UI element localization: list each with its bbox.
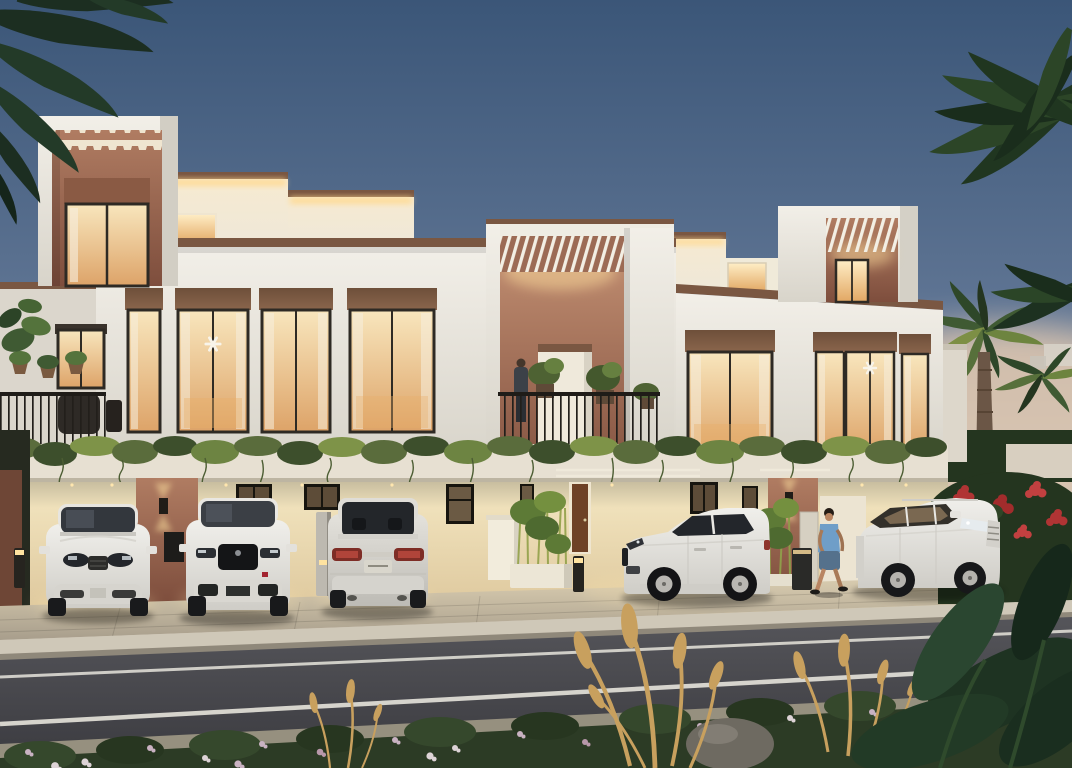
wall-sconce <box>159 498 168 514</box>
window-w4 <box>347 288 437 432</box>
tail-light <box>764 540 770 550</box>
left-tower-curtain <box>70 208 78 282</box>
right-box-pergola <box>826 218 898 252</box>
window-w3 <box>259 288 333 432</box>
face <box>825 513 833 521</box>
bollard-1 <box>14 548 25 588</box>
mirror <box>146 546 157 554</box>
left-terracotta-pier <box>0 470 22 612</box>
dark-bin <box>792 548 812 590</box>
half-wall-cap <box>538 344 592 352</box>
roof-wall-a-coping <box>170 172 288 179</box>
wheel <box>48 598 66 616</box>
black-grille <box>218 544 258 570</box>
window-w8 <box>899 334 931 454</box>
bollard-2 <box>573 556 584 592</box>
left-tower-return <box>160 116 178 286</box>
scene-canvas <box>0 0 1072 768</box>
ground-window-b <box>304 484 340 510</box>
red-badge <box>262 572 268 577</box>
entry-door-1 <box>569 482 591 554</box>
ground-window-e <box>690 482 718 514</box>
window-w6 <box>813 332 847 454</box>
shoe <box>810 590 820 595</box>
mirror <box>950 511 961 518</box>
mirror <box>286 544 297 552</box>
car-suv-rear <box>321 498 433 620</box>
window-w5 <box>685 330 775 454</box>
dusk-townhouse-render <box>0 0 1072 768</box>
right-roof-box <box>778 206 918 302</box>
left-tower-dentils <box>52 130 162 150</box>
central-tower <box>486 219 674 452</box>
balcony-rail-top <box>0 392 106 396</box>
roof-wall-b-coping <box>288 190 414 197</box>
wheel <box>410 590 426 608</box>
right-end-cap <box>943 344 967 350</box>
window-w7 <box>843 332 897 454</box>
central-tower-left-column <box>486 224 500 452</box>
wheel <box>330 590 346 608</box>
central-tower-cap <box>486 219 674 224</box>
roof-wall-a-led <box>172 179 286 186</box>
grille <box>88 556 108 570</box>
right-box-return <box>900 206 918 302</box>
wheel <box>130 598 148 616</box>
shorts <box>819 551 840 570</box>
roof-wall-b-led <box>290 197 412 204</box>
balcony-side-table <box>106 400 122 432</box>
left-tower-lintel <box>64 178 150 204</box>
bamboo-planter-1 <box>510 491 572 588</box>
ground-window-c <box>446 484 474 524</box>
wheel <box>188 596 206 616</box>
pergola-slats <box>498 230 624 272</box>
window-w2 <box>175 288 251 432</box>
balcony-hanging-pots <box>9 351 87 378</box>
mirror <box>179 544 190 552</box>
wheel <box>270 596 288 616</box>
shoe <box>838 587 848 592</box>
window-w1 <box>125 288 163 432</box>
roof-niche-warm-2 <box>728 263 766 292</box>
mirror <box>39 546 50 554</box>
